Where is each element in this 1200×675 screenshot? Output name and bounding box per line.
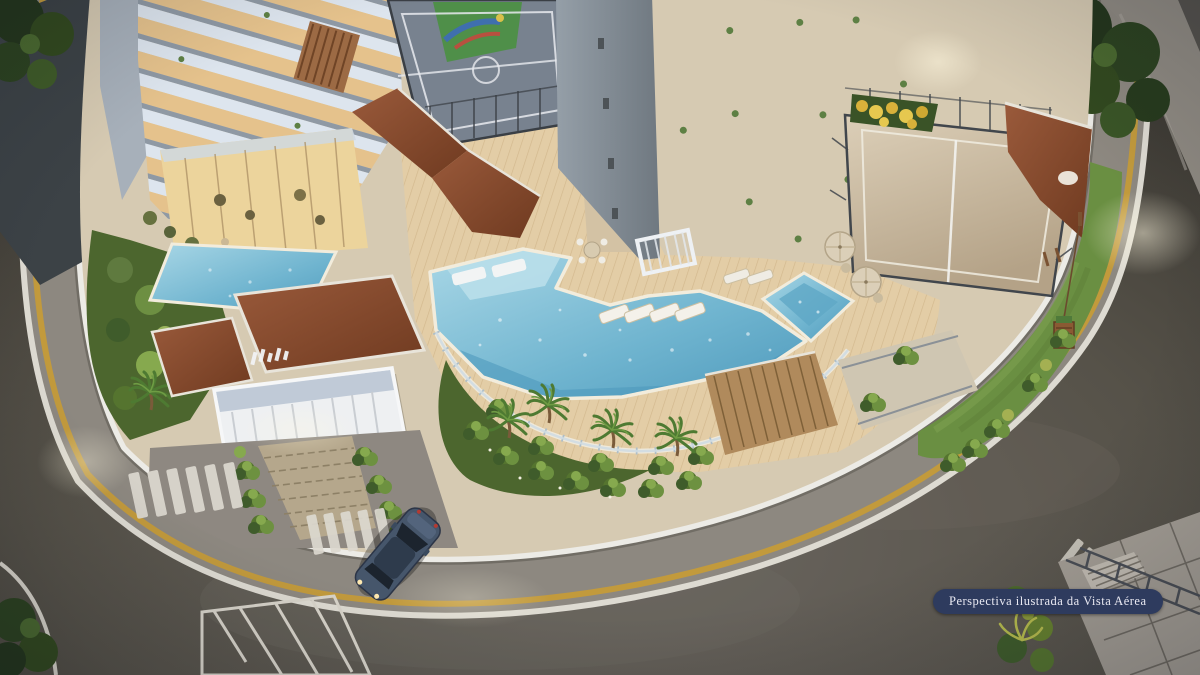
dusk-vignette: [0, 0, 1200, 675]
caption-badge: Perspectiva ilustrada da Vista Aérea: [933, 589, 1163, 614]
scene-canvas: [0, 0, 1200, 675]
aerial-render-scene: Perspectiva ilustrada da Vista Aérea: [0, 0, 1200, 675]
